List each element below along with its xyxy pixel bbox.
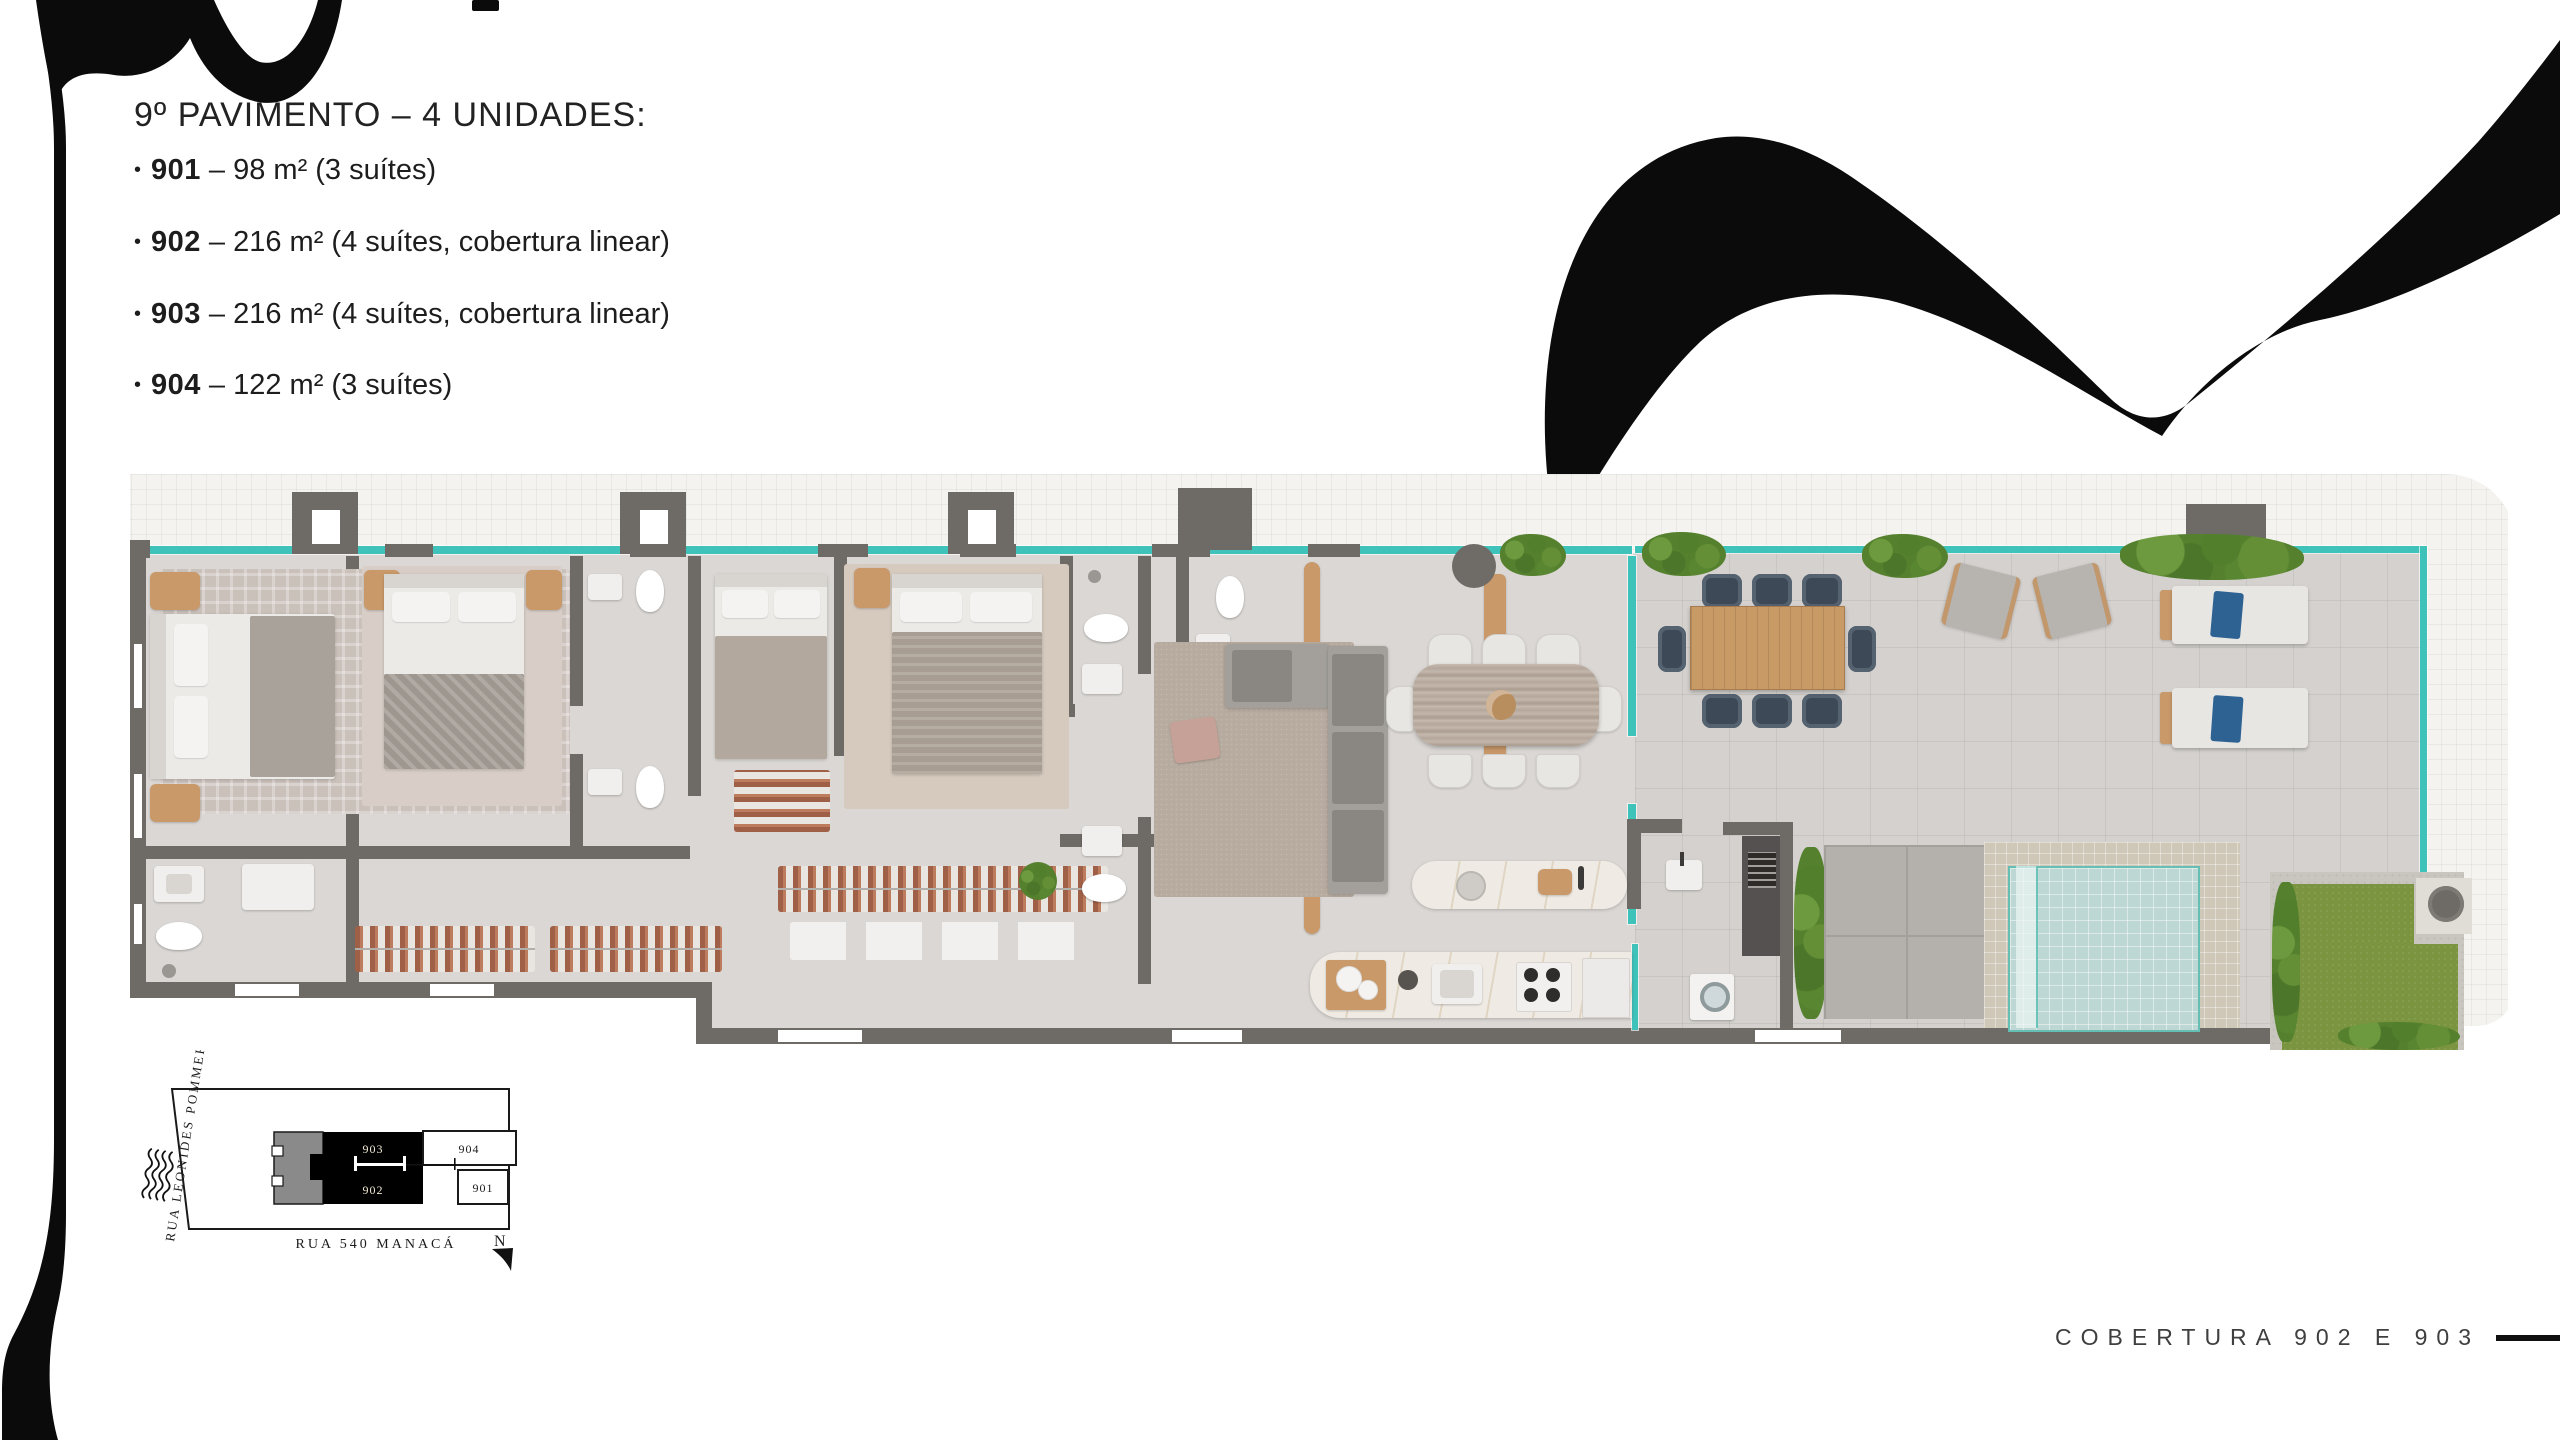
sofa-cushion bbox=[1332, 810, 1384, 882]
door-gap bbox=[1755, 1030, 1841, 1042]
unit-specs: – 98 m² (3 suítes) bbox=[209, 154, 436, 186]
scale-tick-black bbox=[454, 1158, 456, 1170]
scale-bar-black bbox=[406, 1164, 456, 1166]
window-jamb bbox=[385, 544, 433, 557]
burner bbox=[1546, 968, 1560, 982]
bed-blanket bbox=[384, 674, 524, 769]
hedge bbox=[1862, 534, 1948, 578]
map-label-904: 904 bbox=[459, 1142, 480, 1156]
interior-wall bbox=[357, 846, 690, 859]
unit-number: 903 bbox=[151, 298, 201, 330]
bed-blanket bbox=[892, 632, 1042, 774]
unit-number: 902 bbox=[151, 226, 201, 258]
map-label-902: 902 bbox=[363, 1183, 384, 1197]
hedge-vertical bbox=[1794, 847, 1828, 1019]
bed-pillow bbox=[900, 592, 962, 622]
interior-wall bbox=[570, 556, 583, 706]
toilet bbox=[636, 766, 664, 808]
map-label-901: 901 bbox=[473, 1181, 494, 1195]
outdoor-chair bbox=[1658, 626, 1686, 672]
floor-plan bbox=[130, 474, 2508, 1052]
hedge bbox=[1642, 532, 1726, 576]
interior-wall bbox=[570, 754, 583, 859]
unit-list-item-901: •901– 98 m² (3 suítes) bbox=[134, 154, 436, 187]
shaft-tab-opening bbox=[640, 510, 668, 544]
bullet: • bbox=[134, 303, 141, 325]
gray-notch bbox=[272, 1146, 283, 1156]
island-tray bbox=[1538, 869, 1572, 895]
window-slit bbox=[134, 904, 142, 944]
footer-rule bbox=[2496, 1335, 2560, 1341]
unit-list-item-904: •904– 122 m² (3 suítes) bbox=[134, 369, 452, 402]
round-table bbox=[2428, 886, 2464, 922]
unit-list-item-903: •903– 216 m² (4 suítes, cobertura linear… bbox=[134, 298, 670, 331]
page-title: 9º PAVIMENTO – 4 UNIDADES: bbox=[134, 96, 1034, 135]
laundry-glass bbox=[1632, 944, 1638, 1030]
cooktop bbox=[1516, 962, 1572, 1012]
toilet bbox=[1216, 576, 1244, 618]
shower-head bbox=[1088, 570, 1101, 583]
bed-headboard bbox=[384, 574, 524, 588]
bed-pillow bbox=[774, 590, 820, 618]
indoor-plant bbox=[1019, 862, 1057, 900]
toilet bbox=[1084, 614, 1128, 642]
sofa-cushion bbox=[1332, 654, 1384, 726]
interior-wall bbox=[1138, 817, 1151, 984]
window-slit bbox=[430, 984, 494, 996]
lounger-towel bbox=[2210, 591, 2244, 639]
outdoor-chair bbox=[1848, 626, 1876, 672]
terrace-railing-top bbox=[1635, 546, 2427, 553]
accent-armchair bbox=[1169, 716, 1220, 764]
bed-headboard bbox=[892, 574, 1042, 588]
nightstand bbox=[150, 784, 200, 822]
swoosh-top-right bbox=[1545, 40, 2560, 514]
terrace-railing-right bbox=[2420, 546, 2427, 906]
bed-pillow bbox=[174, 696, 208, 758]
outdoor-chair bbox=[1802, 574, 1842, 608]
nightstand bbox=[526, 570, 562, 610]
terrace-wall-block bbox=[1627, 819, 1641, 909]
sink-bowl bbox=[1440, 970, 1474, 998]
outdoor-dining-table bbox=[1690, 606, 1845, 690]
window-jamb bbox=[1308, 544, 1360, 557]
unit-specs: – 216 m² (4 suítes, cobertura linear) bbox=[209, 226, 670, 258]
dining-chair bbox=[1386, 686, 1414, 732]
door-gap bbox=[778, 1030, 862, 1042]
scale-tick bbox=[354, 1156, 357, 1171]
north-label: N bbox=[494, 1233, 506, 1250]
header-block: 9º PAVIMENTO – 4 UNIDADES: •901– 98 m² (… bbox=[134, 96, 1034, 135]
unit-number: 904 bbox=[151, 369, 201, 401]
scale-bar-white bbox=[354, 1163, 406, 1166]
bathroom-sink bbox=[1082, 664, 1122, 694]
swoosh-top-left bbox=[36, 0, 342, 104]
washer-door bbox=[1700, 982, 1730, 1012]
unit-specs: – 122 m² (3 suítes) bbox=[209, 369, 452, 401]
island-sink bbox=[1456, 871, 1486, 901]
footer-label: COBERTURA 902 E 903 bbox=[2055, 1324, 2480, 1351]
closet-rail-bar bbox=[778, 888, 1108, 890]
shaft-tab bbox=[1178, 488, 1252, 550]
closet-rail bbox=[734, 770, 830, 832]
hedge bbox=[2338, 1022, 2460, 1050]
sofa-cushion bbox=[1232, 650, 1292, 702]
burner bbox=[1524, 988, 1538, 1002]
concrete-slabs bbox=[1824, 845, 1984, 1019]
bed-blanket bbox=[715, 636, 827, 759]
interior-wall bbox=[146, 846, 346, 859]
unit-list-item-902: •902– 216 m² (4 suítes, cobertura linear… bbox=[134, 226, 670, 259]
outdoor-sink bbox=[1666, 860, 1702, 890]
window-slit bbox=[134, 774, 142, 838]
bed-pillow bbox=[722, 590, 768, 618]
paper-mask bbox=[130, 998, 716, 1052]
coffee-maker bbox=[1398, 970, 1418, 990]
footer: COBERTURA 902 E 903 bbox=[2055, 1324, 2560, 1351]
gray-notch bbox=[272, 1176, 283, 1186]
bullet: • bbox=[134, 374, 141, 396]
island-faucet bbox=[1578, 866, 1584, 890]
street-label-bottom: RUA 540 MANACÁ bbox=[295, 1235, 456, 1252]
window-slit bbox=[134, 644, 142, 708]
hedge bbox=[2120, 534, 2304, 580]
unit-specs: – 216 m² (4 suítes, cobertura linear) bbox=[209, 298, 670, 330]
scale-tick bbox=[403, 1156, 406, 1171]
bed-pillow bbox=[174, 624, 208, 686]
living-terrace-glass bbox=[1628, 556, 1636, 736]
bbq-grill bbox=[1748, 852, 1776, 888]
lounger-towel bbox=[2210, 695, 2243, 743]
burner bbox=[1524, 968, 1538, 982]
closet-shelves bbox=[790, 922, 1090, 960]
bed-headboard bbox=[715, 574, 827, 587]
bathroom-sink bbox=[588, 769, 622, 795]
window-glass-band bbox=[138, 546, 1632, 554]
outdoor-chair bbox=[1702, 694, 1742, 728]
window-slit bbox=[235, 984, 299, 996]
bed-pillow bbox=[458, 592, 516, 622]
burner bbox=[1546, 988, 1560, 1002]
dining-chair bbox=[1482, 634, 1526, 668]
dining-chair bbox=[1428, 634, 1472, 668]
bed-blanket bbox=[250, 616, 335, 777]
kitchen-island bbox=[1412, 861, 1627, 909]
bullet: • bbox=[134, 159, 141, 181]
outdoor-faucet bbox=[1680, 852, 1684, 866]
north-arrow-icon bbox=[492, 1248, 513, 1271]
linen-shelf bbox=[242, 864, 314, 910]
sofa-cushion bbox=[1332, 732, 1384, 804]
interior-wall bbox=[1138, 556, 1151, 674]
nightstand bbox=[854, 568, 890, 608]
bed-pillow bbox=[392, 592, 450, 622]
outer-wall-bottom-left bbox=[130, 982, 712, 998]
table-centerpiece bbox=[1486, 690, 1516, 720]
sink-bowl bbox=[166, 874, 192, 894]
closet-rail-bar bbox=[550, 948, 722, 950]
closet-rail-bar bbox=[355, 948, 535, 950]
dining-chair bbox=[1482, 754, 1526, 788]
swoosh-left-stem bbox=[2, 16, 66, 1440]
plate bbox=[1358, 980, 1378, 1000]
outdoor-chair bbox=[1702, 574, 1742, 608]
pool-step bbox=[2016, 866, 2038, 1028]
dining-chair bbox=[1428, 754, 1472, 788]
outdoor-chair bbox=[1802, 694, 1842, 728]
outdoor-chair bbox=[1752, 574, 1792, 608]
swoosh-top-notch bbox=[472, 0, 499, 11]
toilet bbox=[156, 922, 202, 950]
shaft-tab-opening bbox=[312, 510, 340, 544]
bbq-wall bbox=[1780, 822, 1793, 1030]
bed-pillow bbox=[970, 592, 1032, 622]
hedge bbox=[1500, 534, 1566, 576]
door-gap bbox=[1172, 1030, 1242, 1042]
toilet bbox=[1082, 874, 1126, 902]
hedge-vertical bbox=[2272, 882, 2300, 1042]
dining-chair bbox=[1536, 634, 1580, 668]
bed-headboard bbox=[150, 614, 166, 779]
nightstand bbox=[150, 572, 200, 610]
interior-wall bbox=[688, 556, 701, 796]
toilet bbox=[636, 570, 664, 612]
unit-number: 901 bbox=[151, 154, 201, 186]
bullet: • bbox=[134, 231, 141, 253]
bathroom-sink bbox=[1082, 826, 1122, 856]
pendant-lamp bbox=[1452, 544, 1496, 588]
map-label-903: 903 bbox=[363, 1142, 384, 1156]
site-map: 903 902 904 901 RUA 540 MANACÁ RUA LEONI… bbox=[140, 1050, 540, 1290]
shaft-tab-opening bbox=[968, 510, 996, 544]
dining-chair bbox=[1536, 754, 1580, 788]
shower-head bbox=[162, 964, 176, 978]
bathroom-sink bbox=[588, 574, 622, 600]
outdoor-chair bbox=[1752, 694, 1792, 728]
dishwasher bbox=[1582, 958, 1630, 1018]
